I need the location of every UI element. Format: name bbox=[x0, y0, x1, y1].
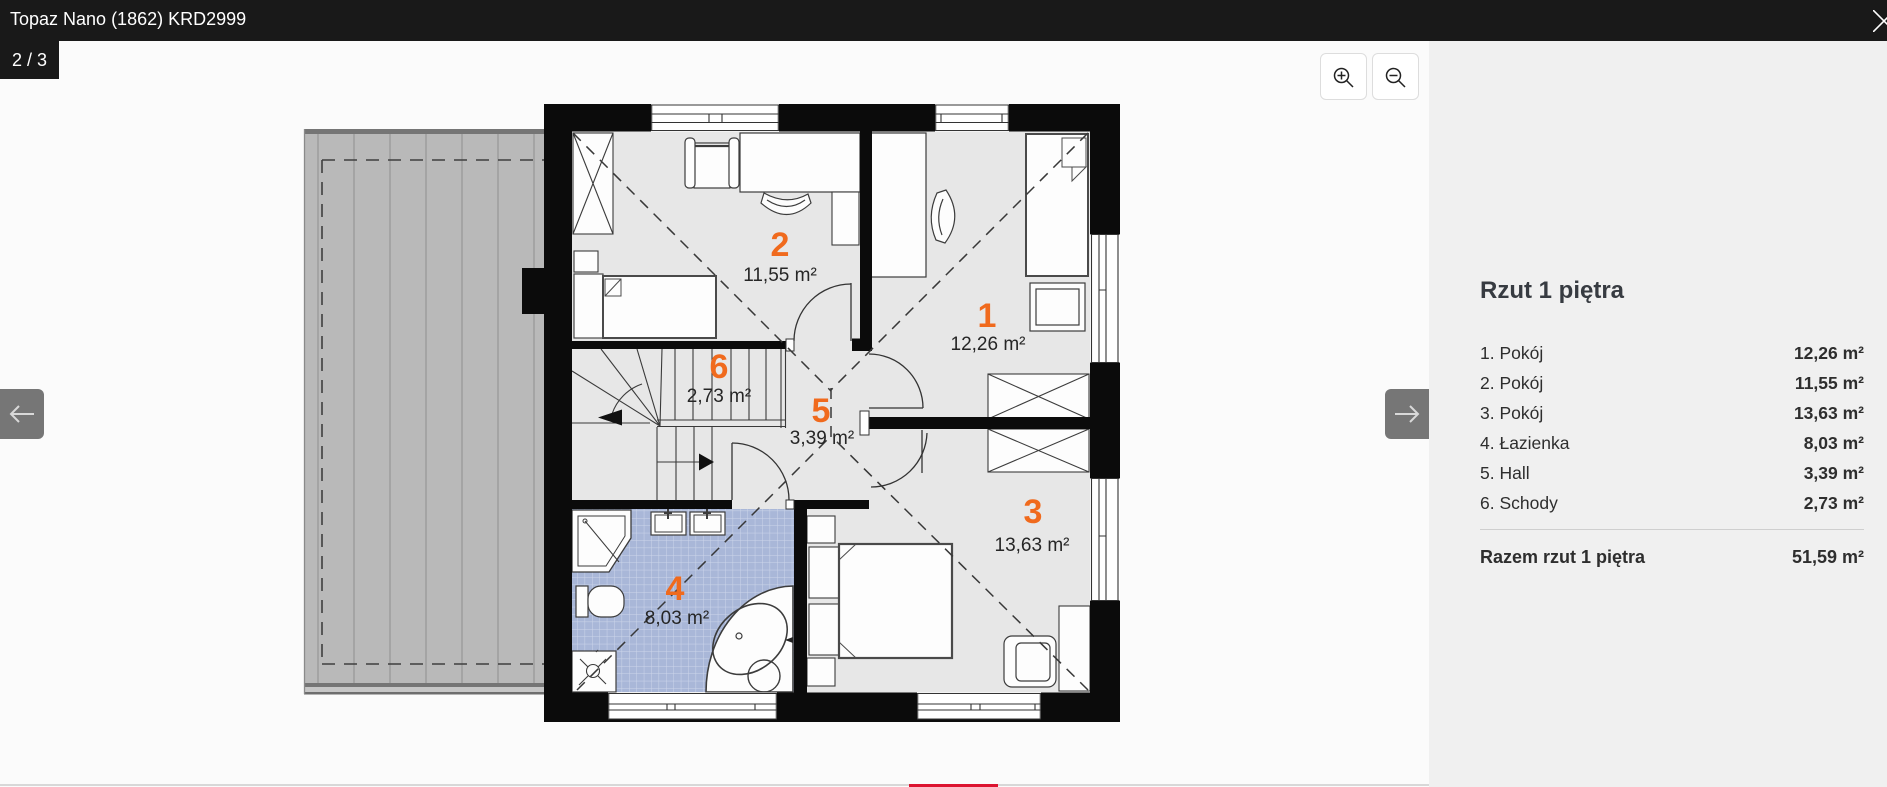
svg-text:5: 5 bbox=[812, 392, 831, 430]
svg-text:3,39 m²: 3,39 m² bbox=[790, 428, 854, 449]
svg-text:2: 2 bbox=[771, 226, 790, 264]
svg-text:6: 6 bbox=[710, 348, 729, 386]
svg-text:11,55 m²: 11,55 m² bbox=[743, 265, 817, 286]
svg-text:3: 3 bbox=[1024, 493, 1043, 531]
svg-text:4: 4 bbox=[666, 570, 685, 608]
svg-text:1: 1 bbox=[978, 297, 997, 335]
svg-text:8,03 m²: 8,03 m² bbox=[645, 608, 709, 629]
svg-text:12,26 m²: 12,26 m² bbox=[951, 334, 1026, 355]
svg-text:13,63 m²: 13,63 m² bbox=[995, 535, 1070, 556]
svg-text:2,73 m²: 2,73 m² bbox=[687, 386, 751, 407]
